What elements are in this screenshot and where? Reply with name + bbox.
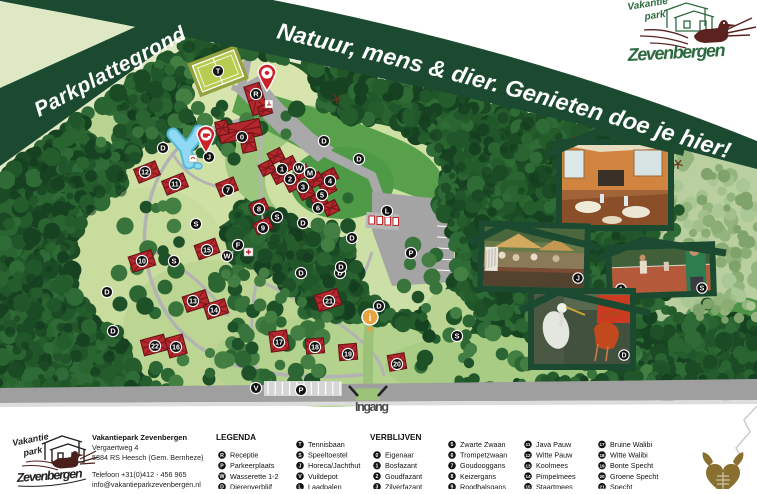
- svg-text:Horeca/Jachthut: Horeca/Jachthut: [308, 461, 360, 470]
- svg-text:Vuildepot: Vuildepot: [308, 472, 338, 481]
- svg-text:Receptie: Receptie: [230, 451, 258, 460]
- svg-text:D: D: [356, 155, 362, 164]
- svg-text:P: P: [298, 386, 303, 395]
- svg-text:12: 12: [141, 170, 149, 177]
- svg-text:0: 0: [376, 453, 379, 459]
- svg-text:17: 17: [599, 442, 605, 447]
- svg-text:D: D: [376, 302, 382, 311]
- svg-text:12: 12: [525, 453, 531, 458]
- svg-text:Bosfazant: Bosfazant: [385, 461, 417, 470]
- svg-text:Vergaertweg 4: Vergaertweg 4: [92, 443, 138, 452]
- svg-text:Dierenverblijf: Dierenverblijf: [230, 482, 272, 489]
- svg-text:W: W: [295, 164, 303, 173]
- svg-text:D: D: [220, 485, 224, 489]
- svg-text:Roodhalsgans: Roodhalsgans: [460, 482, 506, 489]
- svg-text:2: 2: [288, 175, 292, 184]
- svg-text:7: 7: [451, 463, 454, 469]
- svg-text:W: W: [220, 474, 225, 480]
- svg-text:Goudooggans: Goudooggans: [460, 461, 506, 470]
- svg-text:R: R: [253, 90, 259, 99]
- svg-text:J: J: [299, 463, 302, 469]
- svg-text:S: S: [454, 332, 459, 341]
- svg-text:5: 5: [320, 191, 324, 200]
- svg-text:18: 18: [599, 453, 605, 458]
- svg-text:Witte Pauw: Witte Pauw: [536, 451, 573, 460]
- svg-text:11: 11: [171, 182, 179, 189]
- svg-text:9: 9: [261, 224, 265, 233]
- svg-text:5384 RS Heesch (Gem. Bernheze): 5384 RS Heesch (Gem. Bernheze): [92, 453, 203, 462]
- svg-text:F: F: [236, 241, 241, 250]
- svg-text:17: 17: [275, 340, 283, 347]
- svg-text:i: i: [369, 313, 372, 324]
- svg-text:Goudfazant: Goudfazant: [385, 472, 422, 481]
- svg-text:13: 13: [525, 463, 531, 468]
- svg-text:19: 19: [344, 352, 352, 359]
- svg-text:Tennisbaan: Tennisbaan: [308, 440, 345, 449]
- svg-text:S: S: [298, 453, 302, 459]
- svg-text:Groene Specht: Groene Specht: [610, 472, 658, 481]
- svg-text:Pimpelmees: Pimpelmees: [536, 472, 576, 481]
- svg-text:Specht: Specht: [610, 482, 632, 489]
- svg-text:Telefoon +31(0)412 - 456 965: Telefoon +31(0)412 - 456 965: [92, 470, 187, 479]
- svg-text:Vakantiepark Zevenbergen: Vakantiepark Zevenbergen: [92, 433, 187, 442]
- svg-text:Ingang: Ingang: [355, 400, 389, 414]
- svg-text:6: 6: [451, 453, 454, 459]
- svg-text:VERBLIJVEN: VERBLIJVEN: [370, 433, 421, 442]
- svg-text:Bruine Walibi: Bruine Walibi: [610, 440, 652, 449]
- svg-text:15: 15: [525, 485, 531, 489]
- svg-text:S: S: [193, 220, 198, 229]
- svg-text:7: 7: [226, 186, 230, 195]
- svg-text:D: D: [298, 269, 304, 278]
- svg-text:Zilverfazant: Zilverfazant: [385, 482, 422, 489]
- svg-text:M: M: [307, 169, 313, 178]
- svg-text:18: 18: [311, 345, 319, 352]
- svg-text:21: 21: [599, 485, 605, 489]
- svg-text:D: D: [321, 137, 327, 146]
- svg-text:Zwarte Zwaan: Zwarte Zwaan: [460, 440, 506, 449]
- svg-text:Trompetzwaan: Trompetzwaan: [460, 451, 507, 460]
- svg-text:2: 2: [376, 474, 379, 480]
- svg-text:D: D: [104, 288, 110, 297]
- svg-text:Bonte Specht: Bonte Specht: [610, 461, 653, 470]
- svg-text:9: 9: [451, 485, 454, 489]
- svg-text:S: S: [171, 257, 176, 266]
- svg-text:20: 20: [599, 474, 605, 479]
- svg-text:6: 6: [316, 204, 320, 213]
- svg-text:16: 16: [172, 345, 180, 352]
- svg-text:20: 20: [393, 362, 401, 369]
- svg-text:5: 5: [451, 442, 454, 448]
- svg-text:10: 10: [138, 259, 146, 266]
- svg-text:D: D: [160, 144, 166, 153]
- svg-text:LEGENDA: LEGENDA: [216, 433, 256, 442]
- svg-text:P: P: [408, 249, 413, 258]
- svg-text:15: 15: [203, 248, 211, 255]
- svg-text:Java Pauw: Java Pauw: [536, 440, 572, 449]
- svg-text:13: 13: [189, 299, 197, 306]
- svg-text:D: D: [621, 353, 626, 360]
- svg-text:L: L: [385, 207, 390, 216]
- svg-text:Wasserette 1-2: Wasserette 1-2: [230, 472, 278, 481]
- svg-text:Keizergans: Keizergans: [460, 472, 496, 481]
- svg-text:W: W: [223, 252, 231, 261]
- svg-text:3: 3: [376, 485, 379, 489]
- svg-text:11: 11: [526, 442, 531, 447]
- svg-text:Staartmees: Staartmees: [536, 482, 573, 489]
- svg-text:J: J: [576, 276, 580, 283]
- svg-text:R: R: [220, 453, 224, 459]
- svg-text:14: 14: [210, 308, 218, 315]
- svg-text:22: 22: [151, 344, 159, 351]
- svg-text:T: T: [216, 67, 221, 76]
- svg-text:3: 3: [301, 183, 305, 192]
- svg-text:info@vakantieparkzevenbergen.n: info@vakantieparkzevenbergen.nl: [92, 480, 201, 489]
- svg-text:D: D: [338, 263, 344, 272]
- svg-text:P: P: [220, 463, 224, 469]
- svg-text:Parkeerplaats: Parkeerplaats: [230, 461, 275, 470]
- svg-text:1: 1: [376, 463, 379, 469]
- svg-text:Koolmees: Koolmees: [536, 461, 568, 470]
- svg-text:V: V: [298, 474, 302, 480]
- svg-text:Speeltoestel: Speeltoestel: [308, 451, 348, 460]
- svg-text:Eigenaar: Eigenaar: [385, 451, 414, 460]
- svg-text:D: D: [349, 234, 355, 243]
- svg-text:21: 21: [325, 299, 333, 306]
- svg-text:0: 0: [240, 133, 244, 142]
- svg-text:8: 8: [451, 474, 454, 480]
- svg-text:14: 14: [525, 474, 531, 479]
- svg-text:19: 19: [599, 463, 605, 468]
- svg-text:8: 8: [257, 205, 261, 214]
- svg-text:D: D: [110, 327, 116, 336]
- svg-text:D: D: [300, 219, 306, 228]
- svg-text:S: S: [700, 286, 705, 293]
- svg-text:J: J: [207, 153, 211, 162]
- svg-text:1: 1: [280, 165, 284, 174]
- svg-text:Laadpalen: Laadpalen: [308, 482, 342, 489]
- svg-text:S: S: [274, 213, 279, 222]
- svg-text:Witte Walibi: Witte Walibi: [610, 451, 648, 460]
- svg-text:V: V: [253, 384, 258, 393]
